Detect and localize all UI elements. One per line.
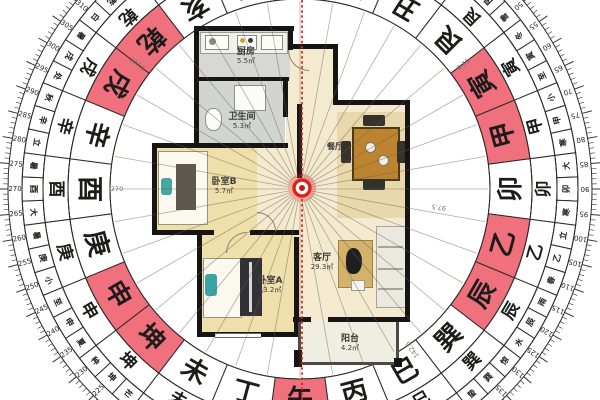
fan-line xyxy=(123,125,288,185)
fan-line xyxy=(308,45,421,180)
direction-overlay xyxy=(0,0,600,400)
fan-line xyxy=(123,193,288,253)
fan-line xyxy=(312,156,485,187)
fan-line xyxy=(306,26,394,178)
fan-line xyxy=(236,12,296,177)
fan-line xyxy=(306,199,394,351)
room-label-balcony: 阳台4.2㎡ xyxy=(328,334,372,352)
fan-line xyxy=(309,68,444,181)
fan-line xyxy=(304,12,364,177)
fan-line xyxy=(310,95,462,183)
feng-shui-compass-floorplan: 0510152025303540455055606570758085909510… xyxy=(0,0,600,400)
room-label-kitchen: 厨房5.5㎡ xyxy=(224,47,268,65)
fan-line xyxy=(179,198,292,333)
center-target-dot xyxy=(299,185,305,191)
room-label-bedroom-b: 卧室B5.7㎡ xyxy=(202,177,246,195)
fan-line xyxy=(137,195,289,283)
room-label-bathroom: 卫生间5.3㎡ xyxy=(218,112,266,130)
fan-line xyxy=(137,95,289,183)
fan-line xyxy=(267,4,298,177)
fan-line xyxy=(311,125,476,185)
fan-line xyxy=(311,193,476,253)
room-label-bedroom-a: 卧室A13.2㎡ xyxy=(246,276,294,294)
fan-line xyxy=(115,191,288,222)
room-label-living: 客厅29.3㎡ xyxy=(300,253,344,271)
fan-line xyxy=(312,191,485,222)
room-label-dining: 餐厅 xyxy=(316,142,354,151)
